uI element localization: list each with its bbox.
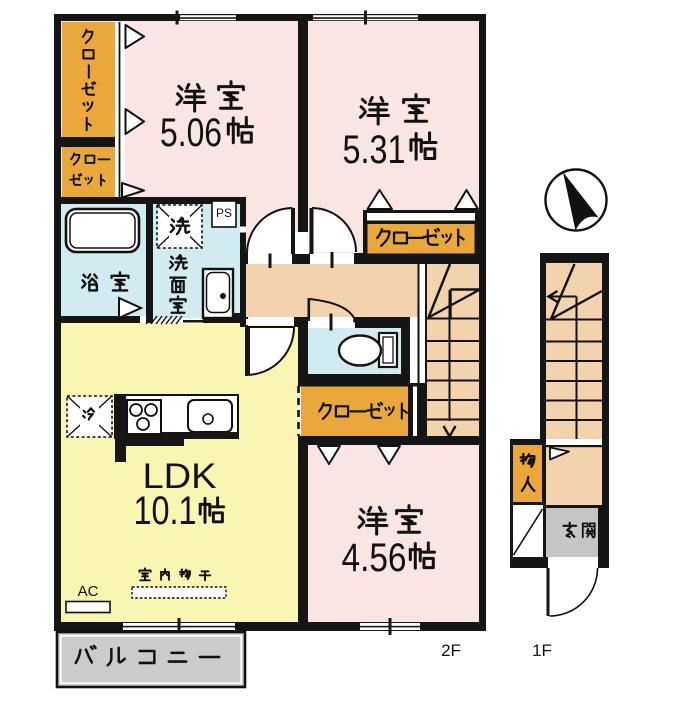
svg-text:4.56: 4.56 [342,536,407,580]
svg-text:PS: PS [216,206,232,220]
svg-text:10.1: 10.1 [134,489,197,533]
svg-text:2F: 2F [441,641,461,660]
svg-text:5.31: 5.31 [343,128,406,172]
svg-text:AC: AC [78,583,99,600]
svg-text:5.06: 5.06 [160,111,222,155]
svg-text:1F: 1F [532,641,552,660]
